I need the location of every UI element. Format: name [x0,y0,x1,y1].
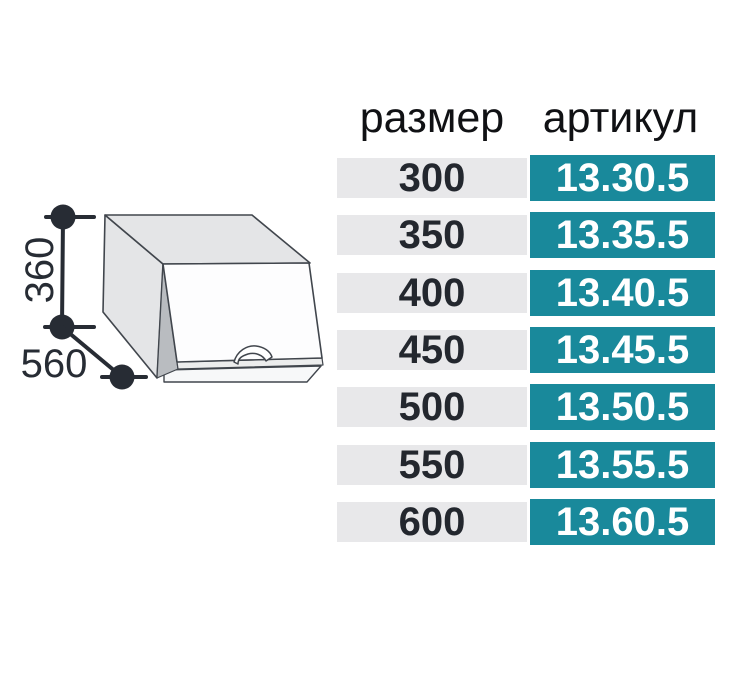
size-cell: 400 [337,273,527,313]
size-cell: 450 [337,330,527,370]
height-dimension-label: 360 [18,237,62,304]
cabinet-diagram: 360 560 [0,0,350,460]
dimension-marker-dot [110,365,135,390]
table-row: 600 13.60.5 [337,499,713,545]
size-cell: 600 [337,502,527,542]
table-row: 450 13.45.5 [337,327,713,373]
table-row: 500 13.50.5 [337,384,713,430]
catalog-page: 360 560 размер артикул 300 13.30.5 350 1… [0,0,750,700]
article-cell: 13.30.5 [530,155,715,201]
column-header-article: артикул [528,93,713,143]
table-row: 300 13.30.5 [337,155,713,201]
table-row: 550 13.55.5 [337,442,713,488]
dimension-marker-dot [51,205,76,230]
size-cell: 350 [337,215,527,255]
size-cell: 500 [337,387,527,427]
table-row: 400 13.40.5 [337,270,713,316]
table-row: 350 13.35.5 [337,212,713,258]
size-cell: 300 [337,158,527,198]
column-header-size: размер [337,93,527,143]
article-cell: 13.40.5 [530,270,715,316]
cabinet-door [163,263,322,362]
depth-dimension-label: 560 [21,342,88,386]
article-cell: 13.45.5 [530,327,715,373]
size-cell: 550 [337,445,527,485]
article-cell: 13.35.5 [530,212,715,258]
article-cell: 13.55.5 [530,442,715,488]
height-dimension: 360 [18,205,94,340]
article-cell: 13.50.5 [530,384,715,430]
article-cell: 13.60.5 [530,499,715,545]
